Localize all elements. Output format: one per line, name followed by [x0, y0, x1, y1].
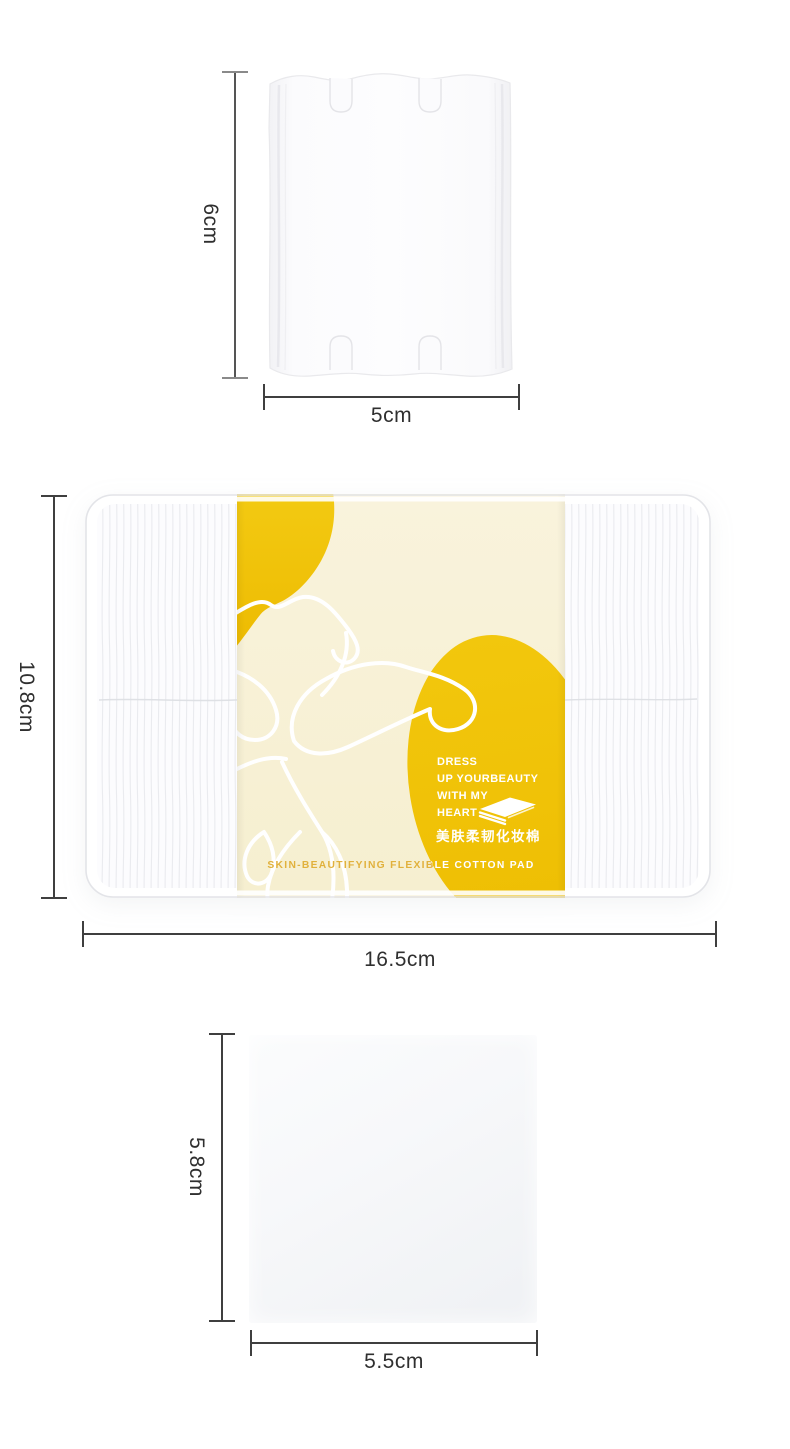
- single-pad-height-line: [234, 72, 236, 378]
- package-height-line: [53, 496, 55, 898]
- single-pad-width-label: 5cm: [264, 404, 519, 428]
- package-image: DRESS UP YOURBEAUTY WITH MY HEART 美肤柔韧化妆…: [85, 494, 711, 898]
- square-pad-height-label: 5.8cm: [184, 1137, 208, 1197]
- single-pad-width-line: [264, 396, 519, 398]
- label-slogan-line-4: HEART: [437, 807, 477, 819]
- label-slogan-line-1: DRESS: [437, 756, 477, 768]
- package-height-label: 10.8cm: [14, 661, 38, 733]
- pad-outline: [269, 74, 512, 377]
- rectangular-pad-image: [262, 68, 518, 380]
- label-slogan-line-3: WITH MY: [437, 790, 488, 802]
- package-width-label: 16.5cm: [84, 948, 716, 972]
- square-pad-height-line: [221, 1034, 223, 1321]
- product-size-chart: 6cm 5cm: [0, 0, 790, 1449]
- package-label-band: DRESS UP YOURBEAUTY WITH MY HEART 美肤柔韧化妆…: [231, 494, 623, 898]
- square-pad-image: [249, 1035, 537, 1323]
- label-product-name-zh: 美肤柔韧化妆棉: [436, 828, 541, 844]
- square-pad-width-line: [251, 1342, 537, 1344]
- label-slogan-line-2: UP YOURBEAUTY: [437, 773, 539, 785]
- package-width-line: [83, 933, 716, 935]
- square-pad-width-label: 5.5cm: [251, 1350, 537, 1374]
- single-pad-height-label: 6cm: [198, 203, 222, 244]
